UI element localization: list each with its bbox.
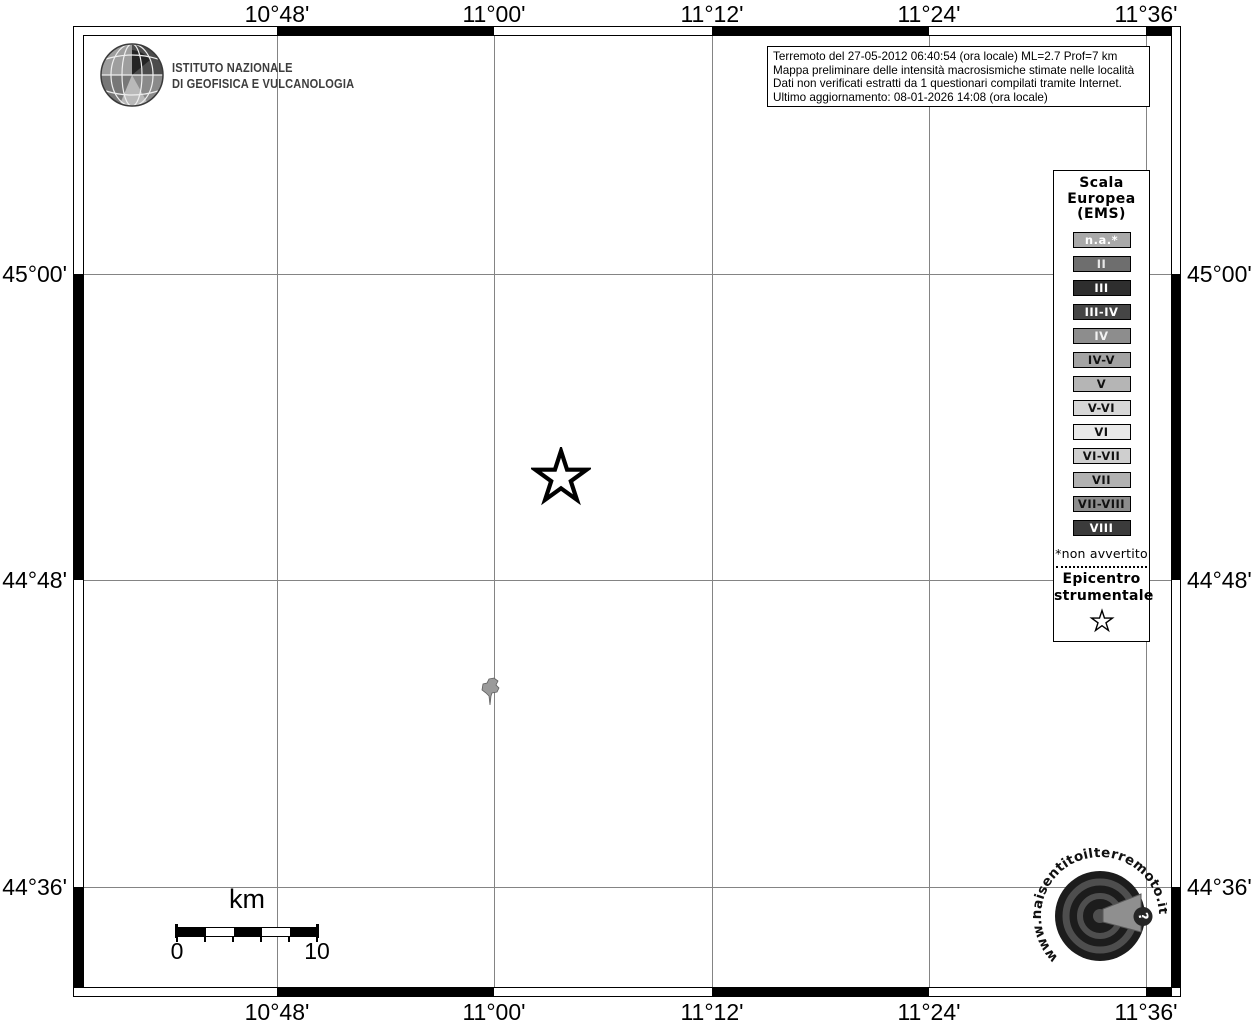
scale-bar-tick [204,937,206,942]
longitude-label-top: 11°36' [1114,1,1177,27]
longitude-label-top: 11°12' [680,1,743,27]
ingv-name-line1: ISTITUTO NAZIONALE [172,60,354,76]
event-info-box: Terremoto del 27-05-2012 06:40:54 (ora l… [767,46,1150,107]
frame-segment-left [74,887,83,988]
longitude-label-top: 11°00' [462,1,525,27]
latitude-label-left: 45°00' [0,261,67,287]
scale-bar [177,927,319,937]
haisentito-logo: www.haisentitoilterremoto.it ? [1033,848,1167,982]
legend-intensity-box: V [1073,376,1131,392]
longitude-label-bottom: 11°24' [897,999,960,1024]
legend-intensity-box: II [1073,256,1131,272]
legend-title: Scala Europea (EMS) [1054,176,1149,223]
scale-bar-end: 10 [297,938,337,965]
frame-segment-bottom [712,988,929,996]
scale-bar-tick [232,937,234,942]
scale-bar-segment [234,928,262,936]
scale-bar-unit: km [217,884,277,915]
scale-bar-start: 0 [157,938,197,965]
epicenter-star-icon [531,447,591,507]
scale-bar-segment [262,928,290,936]
ems-legend: Scala Europea (EMS) n.a.*IIIIIIII-IVIVIV… [1053,170,1150,642]
legend-intensity-box: n.a.* [1073,232,1131,248]
legend-intensity-box: IV-V [1073,352,1131,368]
ingv-name-line2: DI GEOFISICA E VULCANOLOGIA [172,76,354,92]
legend-intensity-box: V-VI [1073,400,1131,416]
legend-items: n.a.*IIIIIIII-IVIVIV-VVV-VIVIVI-VIIVIIVI… [1054,232,1149,536]
event-update-time: Ultimo aggiornamento: 08-01-2026 14:08 (… [773,91,1144,105]
latitude-label-left: 44°36' [0,874,67,900]
legend-star-icon [1089,608,1115,634]
legend-title-line1: Scala [1054,176,1149,192]
scale-bar-segment [206,928,234,936]
event-subtitle: Mappa preliminare delle intensità macros… [773,64,1144,78]
legend-footnote: *non avvertito [1054,546,1149,561]
legend-title-line2: Europea [1054,192,1149,208]
scale-bar-segment [178,928,206,936]
ingv-globe-logo-icon [98,42,166,108]
macroseismic-map: 10°48'10°48'11°00'11°00'11°12'11°12'11°2… [0,0,1254,1024]
map-frame-inner [83,35,1172,988]
frame-segment-bottom [1146,988,1172,996]
latitude-label-right: 44°48' [1187,567,1252,593]
scale-bar-segment [290,928,318,936]
legend-intensity-box: VI [1073,424,1131,440]
latitude-label-right: 45°00' [1187,261,1252,287]
legend-epicenter-line2: strumentale [1054,588,1149,605]
frame-segment-right [1172,887,1180,988]
frame-segment-left [74,274,83,580]
legend-intensity-box: III-IV [1073,304,1131,320]
frame-segment-top [1146,27,1172,35]
ingv-name: ISTITUTO NAZIONALE DI GEOFISICA E VULCAN… [172,60,354,92]
scale-bar-left-cap [175,924,178,938]
event-data-note: Dati non verificati estratti da 1 questi… [773,77,1144,91]
scale-bar-tick [260,937,262,942]
scale-bar-right-cap [316,924,319,938]
latitude-label-left: 44°48' [0,567,67,593]
legend-epicenter-line1: Epicentro [1054,571,1149,588]
legend-intensity-box: VII-VIII [1073,496,1131,512]
scale-bar-tick [288,937,290,942]
legend-intensity-box: VII [1073,472,1131,488]
frame-segment-bottom [277,988,494,996]
frame-segment-top [712,27,929,35]
legend-intensity-box: IV [1073,328,1131,344]
legend-divider [1056,566,1147,568]
legend-intensity-box: III [1073,280,1131,296]
longitude-label-bottom: 10°48' [245,999,310,1024]
longitude-label-top: 10°48' [245,1,310,27]
frame-segment-top [277,27,494,35]
longitude-label-bottom: 11°12' [680,999,743,1024]
legend-title-line3: (EMS) [1054,207,1149,223]
latitude-label-right: 44°36' [1187,874,1252,900]
locality-marker-icon [480,677,502,707]
legend-intensity-box: VI-VII [1073,448,1131,464]
longitude-label-bottom: 11°36' [1114,999,1177,1024]
legend-epicenter-label: Epicentro strumentale [1054,571,1149,605]
event-title: Terremoto del 27-05-2012 06:40:54 (ora l… [773,50,1144,64]
legend-intensity-box: VIII [1073,520,1131,536]
longitude-label-top: 11°24' [897,1,960,27]
longitude-label-bottom: 11°00' [462,999,525,1024]
frame-segment-right [1172,274,1180,580]
